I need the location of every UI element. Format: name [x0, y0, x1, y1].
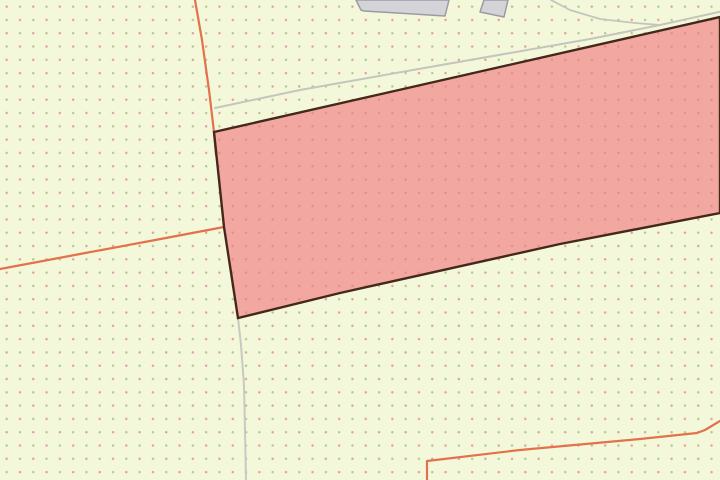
map-canvas[interactable]: [0, 0, 720, 480]
map-viewport[interactable]: [0, 0, 720, 480]
